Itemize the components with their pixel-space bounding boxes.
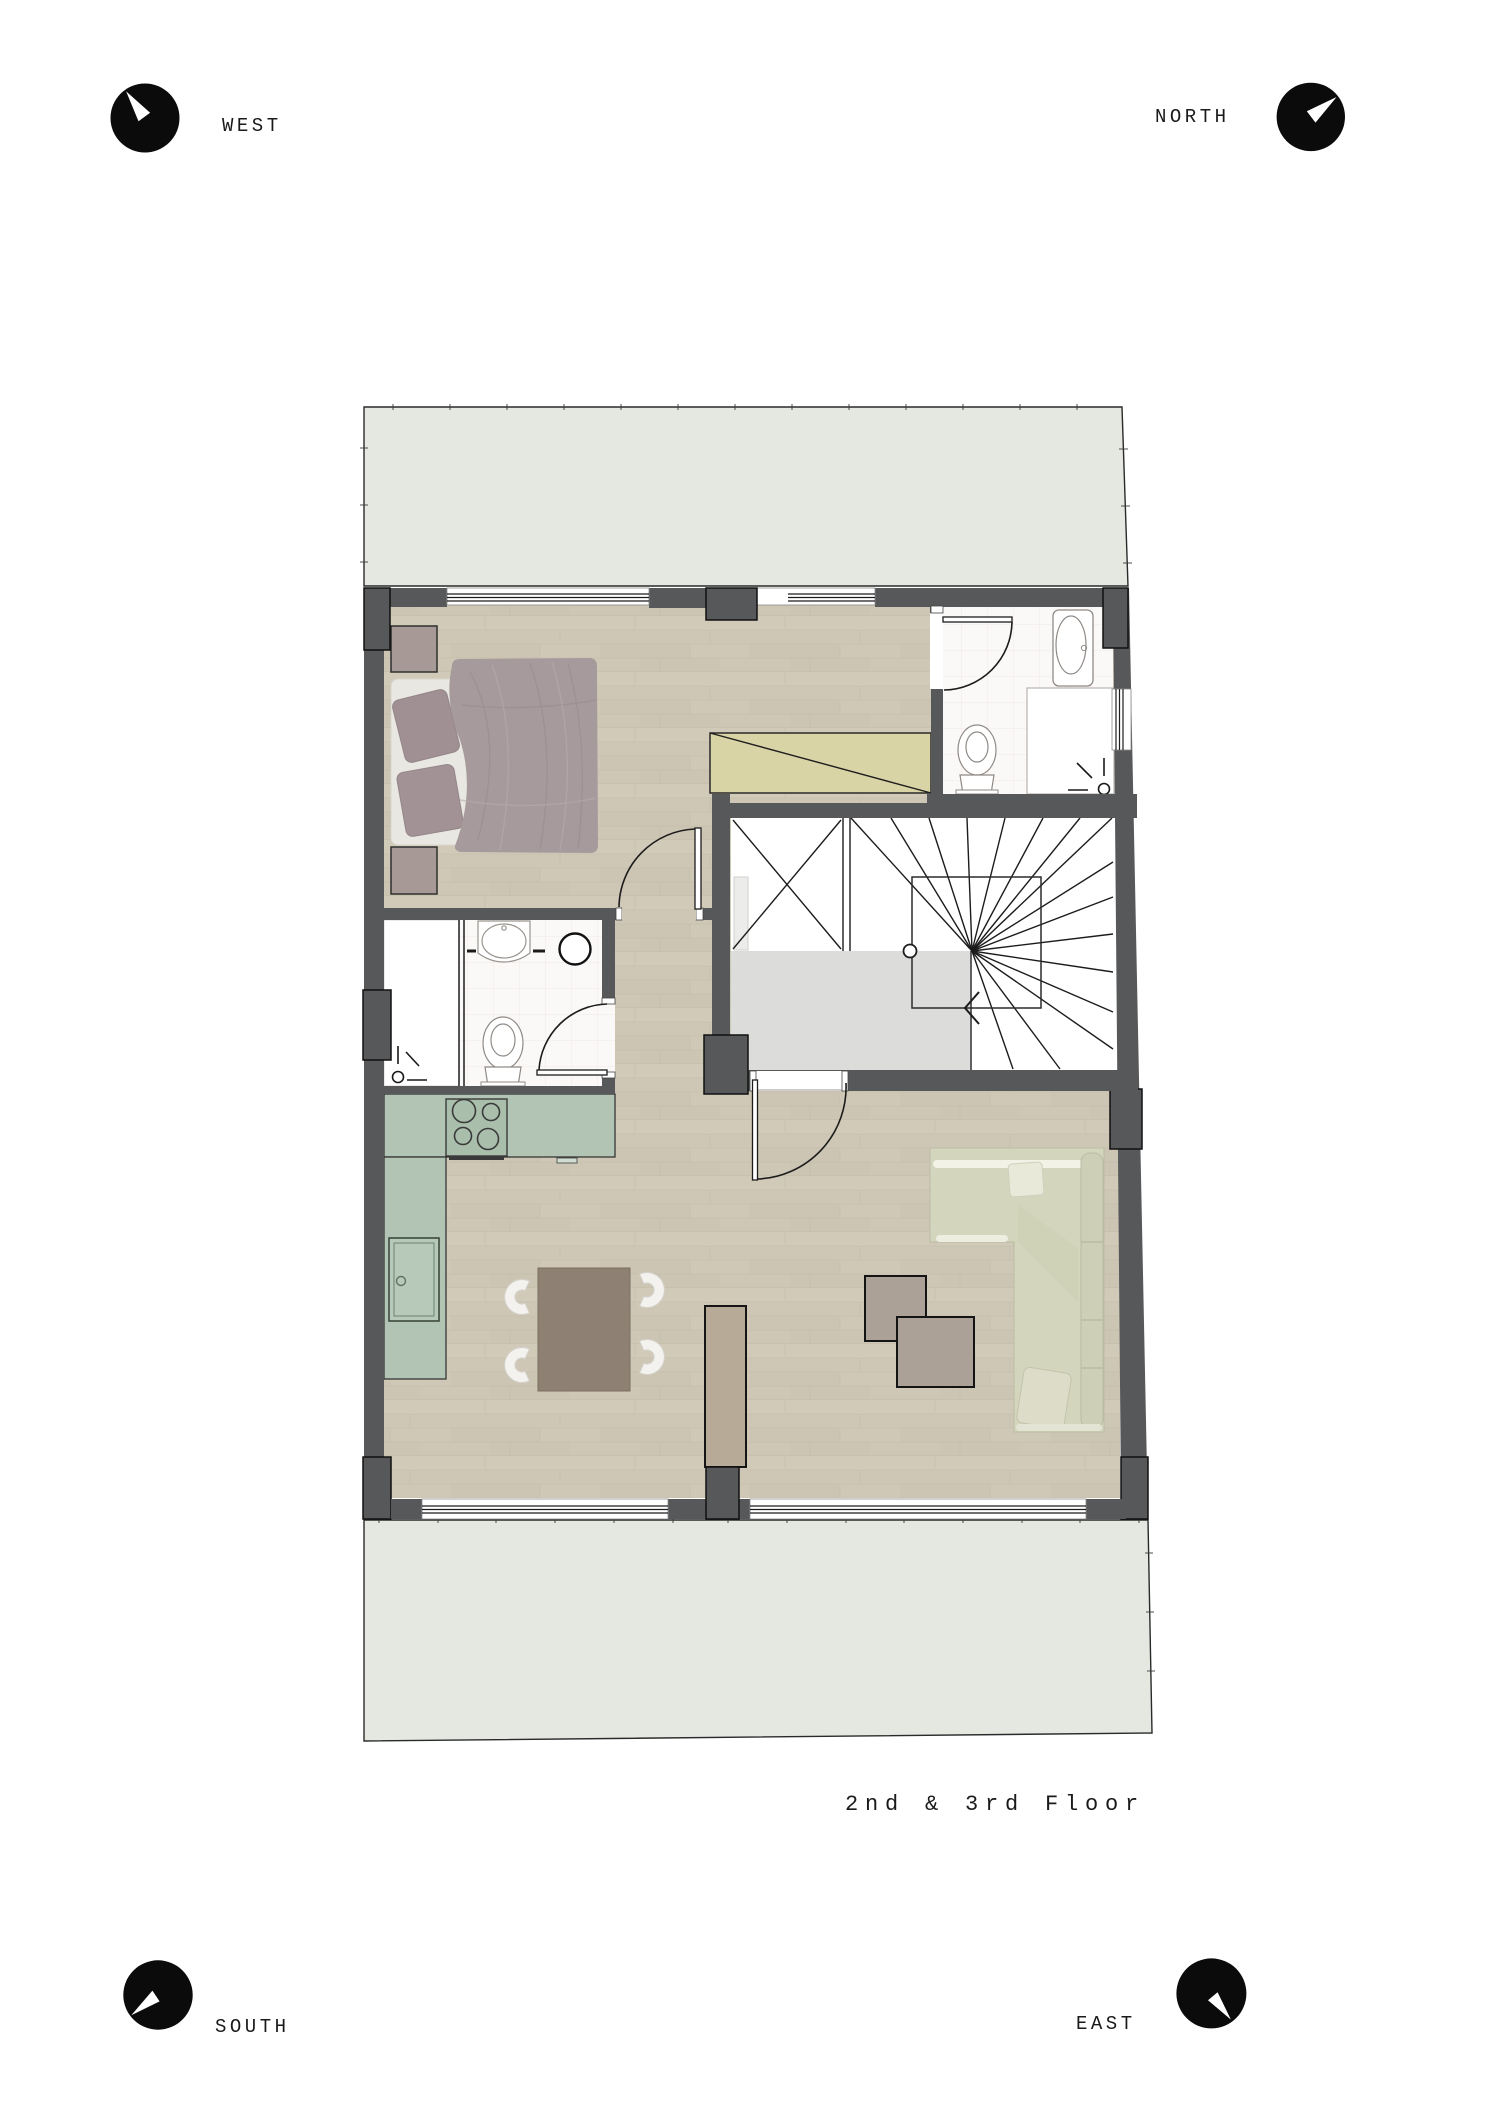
- svg-text:WEST: WEST: [222, 115, 282, 137]
- svg-text:2nd & 3rd Floor: 2nd & 3rd Floor: [845, 1792, 1145, 1817]
- svg-text:SOUTH: SOUTH: [215, 2016, 290, 2038]
- svg-text:NORTH: NORTH: [1155, 106, 1230, 128]
- svg-text:EAST: EAST: [1076, 2013, 1136, 2035]
